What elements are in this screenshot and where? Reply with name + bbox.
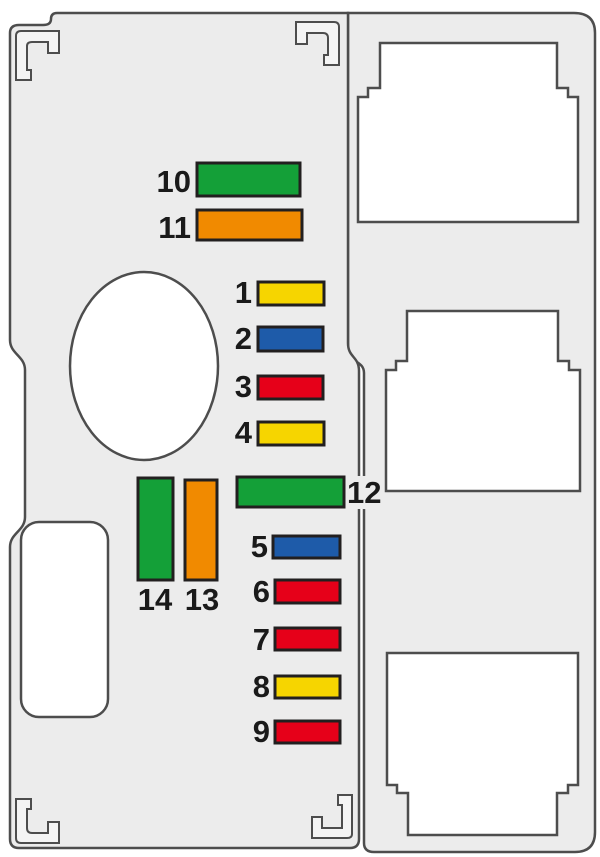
relay-slot-top	[358, 43, 578, 222]
fuse-13-label: 13	[185, 582, 219, 617]
relay-slot-bottom	[387, 653, 578, 835]
fuse-9	[275, 721, 340, 743]
fuse-1	[258, 282, 324, 305]
relay-slot-middle	[386, 311, 580, 491]
fuse-8	[275, 676, 340, 698]
fuse-1-label: 1	[235, 275, 252, 310]
fuse-4	[258, 422, 324, 445]
fuse-13	[185, 480, 217, 580]
fuse-3-label: 3	[235, 369, 252, 404]
fuse-8-label: 8	[253, 669, 270, 704]
oblong-cutout	[21, 522, 108, 717]
fuse-11	[197, 210, 302, 240]
fuse-12	[237, 477, 344, 507]
fuse-11-label: 11	[158, 210, 191, 245]
fuse-2-label: 2	[235, 321, 252, 356]
fuse-10-label: 10	[157, 164, 191, 199]
fuse-14-label: 14	[138, 582, 173, 617]
fuse-9-label: 9	[253, 714, 270, 749]
fuse-box-diagram: 10 11 1 2 3 4 12 5 6 7 8 9 14 13	[0, 0, 600, 857]
fuse-2	[258, 327, 323, 351]
fuse-5	[273, 536, 340, 558]
fuse-3	[258, 376, 323, 399]
round-cutout	[70, 272, 218, 460]
fuse-6	[275, 580, 340, 603]
fuse-4-label: 4	[235, 415, 253, 450]
fuse-7-label: 7	[253, 622, 270, 657]
fuse-10	[197, 163, 300, 196]
fuse-6-label: 6	[253, 574, 270, 609]
diagram-canvas: 10 11 1 2 3 4 12 5 6 7 8 9 14 13	[0, 0, 600, 857]
fuse-5-label: 5	[251, 529, 268, 564]
fuse-14	[138, 478, 173, 580]
fuse-7	[275, 628, 340, 650]
fuse-12-label: 12	[347, 475, 381, 510]
